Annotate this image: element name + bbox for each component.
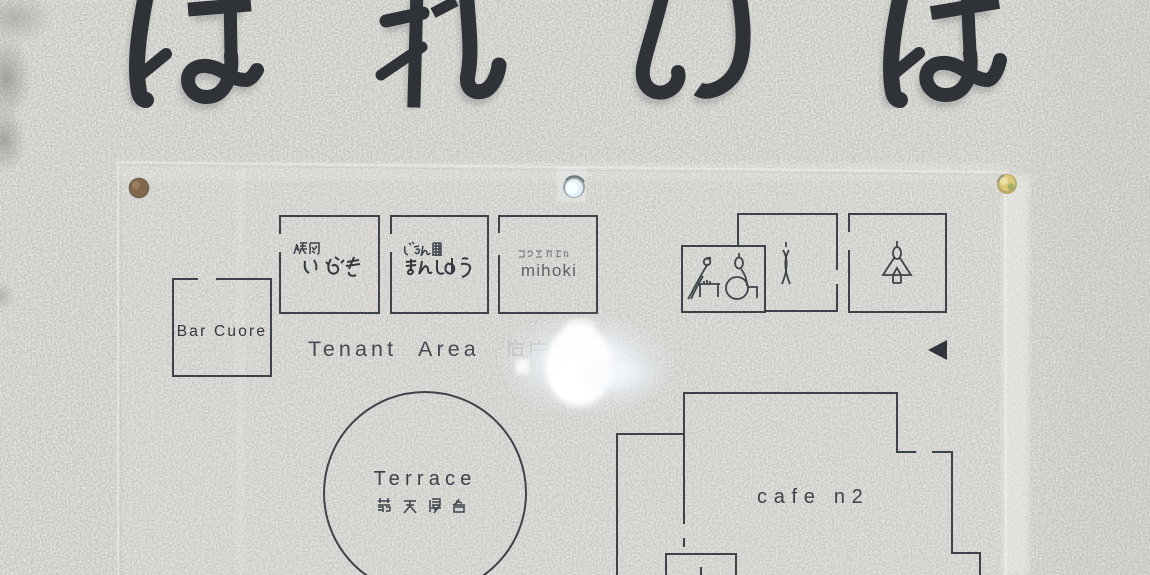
svg-text:mihoki: mihoki bbox=[521, 261, 577, 280]
svg-text:Terrace: Terrace bbox=[373, 468, 476, 490]
svg-text:cafe n2: cafe n2 bbox=[757, 486, 870, 508]
svg-text:Bar Cuore: Bar Cuore bbox=[177, 323, 267, 340]
svg-text:Area: Area bbox=[418, 337, 480, 361]
svg-text:Tenant: Tenant bbox=[308, 337, 397, 361]
